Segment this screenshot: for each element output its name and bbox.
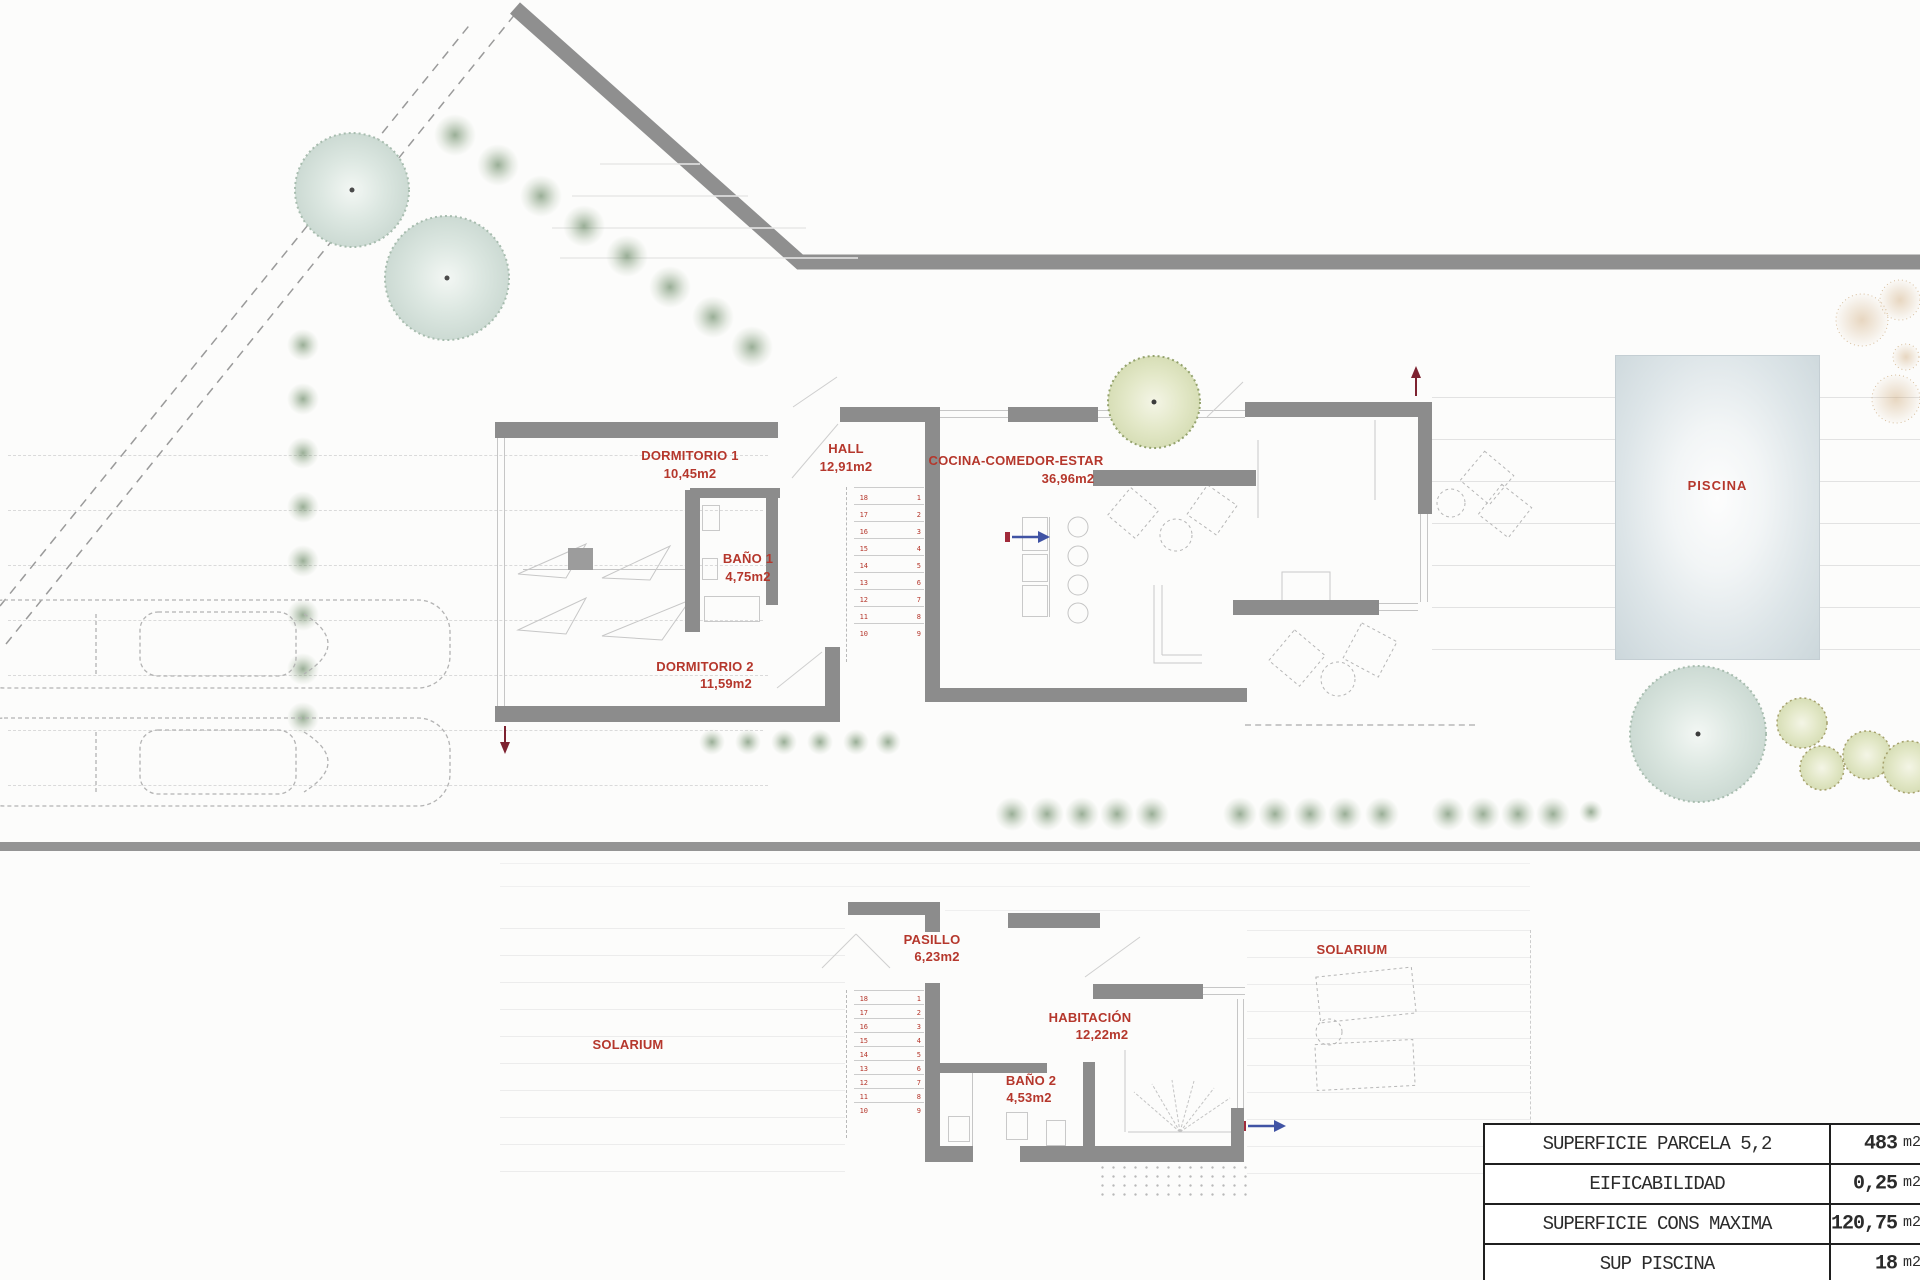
- table-row-value: 120,75 m2: [1831, 1205, 1920, 1243]
- wall: [925, 1146, 973, 1162]
- table-row-value: 483 m2: [1831, 1125, 1920, 1163]
- tree: [1108, 356, 1200, 448]
- stair-numbers-right: 1 2 3 4 5 6 7 8 9: [909, 490, 921, 643]
- stair-numbers-right: 1 2 3 4 5 6 7 8 9: [909, 992, 921, 1118]
- room-area-habitacion: 12,22m2: [1040, 1027, 1164, 1042]
- wall: [766, 490, 778, 605]
- swimming-pool: PISCINA: [1615, 355, 1820, 660]
- stairs-dashed-edge: [846, 990, 847, 1138]
- value-number: 0,25: [1853, 1173, 1897, 1196]
- wall: [1008, 407, 1098, 422]
- value-number: 18: [1875, 1253, 1897, 1276]
- table-row-label: EIFICABILIDAD: [1485, 1165, 1831, 1203]
- wall: [825, 647, 840, 709]
- room-area-dormitorio2: 11,59m2: [658, 676, 794, 691]
- room-area-dormitorio1: 10,45m2: [622, 466, 758, 481]
- solarium-left-label: SOLARIUM: [568, 1037, 688, 1052]
- room-area-pasillo: 6,23m2: [877, 949, 997, 964]
- value-number: 120,75: [1831, 1213, 1897, 1236]
- room-label-cocina: COCINA-COMEDOR-ESTAR: [886, 453, 1146, 468]
- table-row: SUPERFICIE CONS MAXIMA 120,75 m2: [1485, 1205, 1920, 1245]
- value-unit: m2: [1903, 1214, 1920, 1231]
- table-row-label: SUPERFICIE PARCELA 5,2: [1485, 1125, 1831, 1163]
- wall: [1245, 402, 1432, 417]
- value-unit: m2: [1903, 1174, 1920, 1191]
- wall: [840, 407, 940, 422]
- table-row-value: 0,25 m2: [1831, 1165, 1920, 1203]
- value-number: 483: [1864, 1133, 1897, 1156]
- bed-fan-sketch: [1134, 1080, 1230, 1132]
- wall: [685, 490, 700, 632]
- wall: [925, 688, 1247, 702]
- entry-arrow: [1005, 531, 1050, 543]
- room-label-hall: HALL: [806, 441, 886, 456]
- room-label-bano2: BAÑO 2: [969, 1073, 1093, 1088]
- wall: [1008, 913, 1100, 928]
- wall: [925, 983, 940, 1160]
- wall: [495, 706, 840, 722]
- tree: [385, 216, 509, 340]
- car: [0, 718, 450, 806]
- room-label-dormitorio1: DORMITORIO 1: [598, 448, 782, 463]
- furniture-sketch: [1125, 420, 1375, 1132]
- tree: [1630, 666, 1766, 802]
- table-row-label: SUPERFICIE CONS MAXIMA: [1485, 1205, 1831, 1243]
- wall: [1020, 1146, 1231, 1162]
- boundary-wall: [515, 8, 1920, 262]
- staircase-first: 18 17 16 15 14 13 12 11 10 1 2 3 4 5 6 7…: [846, 990, 924, 1116]
- stairs-dashed-edge: [846, 487, 847, 662]
- south-boundary-wall: [0, 842, 1920, 851]
- table-row: SUPERFICIE PARCELA 5,2 483 m2: [1485, 1125, 1920, 1165]
- north-arrow: [1411, 366, 1421, 396]
- room-area-hall: 12,91m2: [803, 459, 889, 474]
- wall: [925, 484, 940, 690]
- wall: [1418, 402, 1432, 514]
- wall: [940, 1063, 1047, 1073]
- wall: [925, 902, 940, 932]
- site-plan-canvas: 18 17 16 15 14 13 12 11 10 1 2 3 4 5 6 7…: [0, 0, 1920, 1280]
- tree: [295, 133, 409, 247]
- table-row: EIFICABILIDAD 0,25 m2: [1485, 1165, 1920, 1205]
- car: [0, 600, 450, 688]
- wall: [1231, 1108, 1244, 1162]
- hedge-south: [995, 797, 1570, 831]
- wall: [1093, 984, 1203, 999]
- table-row-label: SUP PISCINA: [1485, 1245, 1831, 1280]
- wardrobe-marks: [518, 544, 690, 640]
- stair-numbers-left: 18 17 16 15 14 13 12 11 10: [852, 490, 868, 643]
- staircase-ground: 18 17 16 15 14 13 12 11 10 1 2 3 4 5 6 7…: [846, 487, 924, 640]
- kitchen-stools: [1068, 517, 1088, 623]
- room-area-bano1: 4,75m2: [700, 569, 796, 584]
- table-row: SUP PISCINA 18 m2: [1485, 1245, 1920, 1280]
- wall: [495, 422, 778, 438]
- shrubs-tan: [1836, 280, 1920, 423]
- value-unit: m2: [1903, 1134, 1920, 1151]
- room-area-bano2: 4,53m2: [967, 1090, 1091, 1105]
- shrubs-yellow: [1777, 698, 1920, 793]
- solarium-right-label: SOLARIUM: [1292, 942, 1412, 957]
- room-label-pasillo: PASILLO: [872, 932, 992, 947]
- south-arrow: [500, 726, 510, 754]
- pool-label: PISCINA: [1616, 478, 1819, 493]
- stair-numbers-left: 18 17 16 15 14 13 12 11 10: [852, 992, 868, 1118]
- room-area-cocina: 36,96m2: [1000, 471, 1136, 486]
- wall: [568, 548, 593, 570]
- table-row-value: 18 m2: [1831, 1245, 1920, 1280]
- room-label-dormitorio2: DORMITORIO 2: [613, 659, 797, 674]
- hedge-vertical: [287, 329, 319, 734]
- wall: [1233, 600, 1379, 615]
- area-table: SUPERFICIE PARCELA 5,2 483 m2 EIFICABILI…: [1483, 1123, 1920, 1280]
- entry-arrow: [1241, 1120, 1286, 1132]
- room-label-bano1: BAÑO 1: [700, 551, 796, 566]
- room-label-habitacion: HABITACIÓN: [1028, 1010, 1152, 1025]
- value-unit: m2: [1903, 1254, 1920, 1271]
